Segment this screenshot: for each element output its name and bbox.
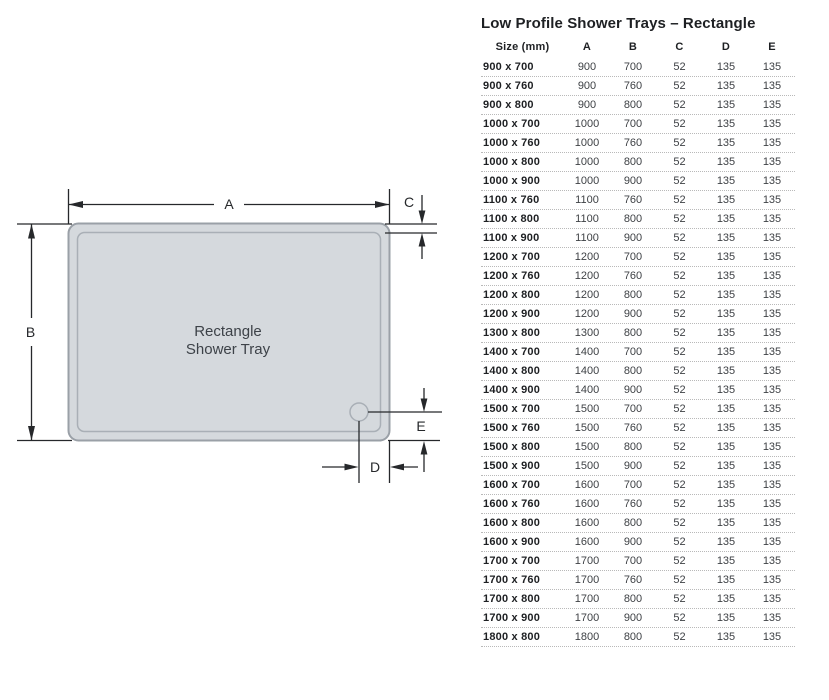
value-cell: 760 [610, 137, 656, 149]
value-cell: 760 [610, 422, 656, 434]
value-cell: 700 [610, 479, 656, 491]
value-cell: 1700 [564, 612, 610, 624]
value-cell: 52 [656, 479, 703, 491]
value-cell: 135 [703, 536, 749, 548]
value-cell: 135 [703, 346, 749, 358]
size-cell: 1000 x 800 [481, 156, 564, 168]
table-row: 1600 x 800160080052135135 [481, 514, 795, 533]
value-cell: 52 [656, 384, 703, 396]
table-row: 1300 x 800130080052135135 [481, 324, 795, 343]
arrowhead-down [421, 399, 428, 413]
table-row: 1100 x 900110090052135135 [481, 229, 795, 248]
size-cell: 900 x 760 [481, 80, 564, 92]
value-cell: 135 [749, 479, 795, 491]
value-cell: 800 [610, 365, 656, 377]
value-cell: 135 [703, 593, 749, 605]
value-cell: 135 [749, 593, 795, 605]
value-cell: 900 [610, 460, 656, 472]
value-cell: 135 [749, 460, 795, 472]
value-cell: 900 [610, 536, 656, 548]
table-row: 1700 x 700170070052135135 [481, 552, 795, 571]
value-cell: 800 [610, 631, 656, 643]
value-cell: 52 [656, 441, 703, 453]
value-cell: 135 [749, 232, 795, 244]
value-cell: 135 [703, 80, 749, 92]
value-cell: 800 [610, 441, 656, 453]
value-cell: 760 [610, 270, 656, 282]
value-cell: 900 [610, 308, 656, 320]
table-row: 1000 x 800100080052135135 [481, 153, 795, 172]
tray-label-line2: Shower Tray [186, 341, 271, 358]
value-cell: 700 [610, 555, 656, 567]
size-cell: 1100 x 800 [481, 213, 564, 225]
value-cell: 800 [610, 517, 656, 529]
column-header: D [703, 41, 749, 53]
value-cell: 135 [749, 574, 795, 586]
value-cell: 135 [749, 175, 795, 187]
column-header: Size (mm) [481, 41, 564, 53]
value-cell: 700 [610, 118, 656, 130]
value-cell: 135 [749, 403, 795, 415]
value-cell: 135 [749, 517, 795, 529]
value-cell: 135 [703, 156, 749, 168]
value-cell: 135 [703, 232, 749, 244]
dimension-a: A [69, 189, 390, 224]
value-cell: 760 [610, 574, 656, 586]
column-header: B [610, 41, 656, 53]
page: Rectangle Shower Tray A B C [0, 0, 829, 700]
value-cell: 135 [749, 346, 795, 358]
value-cell: 1700 [564, 555, 610, 567]
value-cell: 52 [656, 460, 703, 472]
value-cell: 135 [749, 156, 795, 168]
value-cell: 135 [703, 384, 749, 396]
value-cell: 135 [749, 118, 795, 130]
table-row: 900 x 76090076052135135 [481, 77, 795, 96]
table-row: 1000 x 900100090052135135 [481, 172, 795, 191]
value-cell: 1200 [564, 251, 610, 263]
value-cell: 1200 [564, 289, 610, 301]
shower-tray-diagram: Rectangle Shower Tray A B C [0, 180, 460, 500]
size-cell: 1000 x 900 [481, 175, 564, 187]
value-cell: 135 [749, 327, 795, 339]
value-cell: 700 [610, 403, 656, 415]
size-cell: 1700 x 900 [481, 612, 564, 624]
value-cell: 135 [749, 498, 795, 510]
value-cell: 52 [656, 327, 703, 339]
value-cell: 52 [656, 631, 703, 643]
size-cell: 1100 x 760 [481, 194, 564, 206]
value-cell: 1000 [564, 175, 610, 187]
value-cell: 135 [703, 251, 749, 263]
size-cell: 1700 x 800 [481, 593, 564, 605]
table-row: 1700 x 760170076052135135 [481, 571, 795, 590]
table-row: 1200 x 800120080052135135 [481, 286, 795, 305]
value-cell: 900 [610, 232, 656, 244]
value-cell: 135 [749, 80, 795, 92]
table-row: 1200 x 900120090052135135 [481, 305, 795, 324]
size-cell: 1700 x 700 [481, 555, 564, 567]
value-cell: 760 [610, 80, 656, 92]
column-header: A [564, 41, 610, 53]
value-cell: 1200 [564, 270, 610, 282]
value-cell: 900 [564, 61, 610, 73]
value-cell: 52 [656, 156, 703, 168]
size-cell: 900 x 700 [481, 61, 564, 73]
size-cell: 1000 x 760 [481, 137, 564, 149]
value-cell: 135 [703, 517, 749, 529]
table-row: 1700 x 800170080052135135 [481, 590, 795, 609]
value-cell: 52 [656, 270, 703, 282]
value-cell: 135 [703, 631, 749, 643]
value-cell: 800 [610, 213, 656, 225]
table-header-row: Size (mm)ABCDE [481, 36, 795, 58]
value-cell: 135 [703, 118, 749, 130]
value-cell: 52 [656, 118, 703, 130]
dimension-c: C [385, 194, 437, 259]
table-row: 1000 x 700100070052135135 [481, 115, 795, 134]
size-cell: 1400 x 700 [481, 346, 564, 358]
value-cell: 1600 [564, 479, 610, 491]
table-row: 900 x 80090080052135135 [481, 96, 795, 115]
dim-c-label: C [404, 194, 414, 210]
value-cell: 52 [656, 308, 703, 320]
value-cell: 135 [703, 365, 749, 377]
value-cell: 52 [656, 99, 703, 111]
column-header: C [656, 41, 703, 53]
value-cell: 135 [703, 403, 749, 415]
value-cell: 135 [703, 555, 749, 567]
value-cell: 52 [656, 61, 703, 73]
value-cell: 1500 [564, 441, 610, 453]
table-row: 1600 x 900160090052135135 [481, 533, 795, 552]
size-table: Size (mm)ABCDE 900 x 7009007005213513590… [481, 36, 795, 647]
value-cell: 1400 [564, 346, 610, 358]
value-cell: 135 [749, 99, 795, 111]
value-cell: 52 [656, 517, 703, 529]
value-cell: 700 [610, 251, 656, 263]
arrowhead-up [28, 224, 35, 239]
value-cell: 135 [703, 137, 749, 149]
value-cell: 135 [703, 194, 749, 206]
size-cell: 1800 x 800 [481, 631, 564, 643]
table-row: 1500 x 800150080052135135 [481, 438, 795, 457]
value-cell: 135 [749, 441, 795, 453]
table-body: 900 x 70090070052135135900 x 76090076052… [481, 58, 795, 647]
value-cell: 135 [703, 327, 749, 339]
extension-line [385, 224, 437, 233]
table-row: 1000 x 760100076052135135 [481, 134, 795, 153]
value-cell: 135 [703, 479, 749, 491]
value-cell: 135 [703, 441, 749, 453]
value-cell: 1100 [564, 232, 610, 244]
value-cell: 135 [703, 175, 749, 187]
size-cell: 1700 x 760 [481, 574, 564, 586]
value-cell: 135 [703, 498, 749, 510]
value-cell: 135 [749, 631, 795, 643]
value-cell: 52 [656, 555, 703, 567]
value-cell: 52 [656, 137, 703, 149]
dim-b-label: B [26, 324, 35, 340]
arrowhead-left [69, 201, 84, 208]
value-cell: 1300 [564, 327, 610, 339]
size-cell: 1600 x 900 [481, 536, 564, 548]
table-row: 1500 x 760150076052135135 [481, 419, 795, 438]
value-cell: 800 [610, 156, 656, 168]
value-cell: 135 [703, 289, 749, 301]
arrowhead-down [419, 211, 426, 225]
arrowhead-left [390, 464, 404, 471]
value-cell: 1600 [564, 498, 610, 510]
value-cell: 135 [749, 289, 795, 301]
value-cell: 800 [610, 327, 656, 339]
dim-d-label: D [370, 459, 380, 475]
value-cell: 135 [749, 270, 795, 282]
value-cell: 760 [610, 194, 656, 206]
table-row: 1400 x 700140070052135135 [481, 343, 795, 362]
value-cell: 135 [703, 460, 749, 472]
value-cell: 1800 [564, 631, 610, 643]
value-cell: 135 [749, 612, 795, 624]
size-cell: 1500 x 700 [481, 403, 564, 415]
size-cell: 1600 x 700 [481, 479, 564, 491]
value-cell: 135 [703, 99, 749, 111]
value-cell: 52 [656, 175, 703, 187]
size-cell: 1500 x 760 [481, 422, 564, 434]
table-row: 1800 x 800180080052135135 [481, 628, 795, 647]
value-cell: 135 [703, 61, 749, 73]
value-cell: 800 [610, 99, 656, 111]
value-cell: 52 [656, 289, 703, 301]
value-cell: 52 [656, 612, 703, 624]
value-cell: 135 [749, 251, 795, 263]
value-cell: 52 [656, 232, 703, 244]
column-header: E [749, 41, 795, 53]
value-cell: 900 [610, 384, 656, 396]
value-cell: 135 [703, 422, 749, 434]
size-cell: 1200 x 800 [481, 289, 564, 301]
value-cell: 1000 [564, 137, 610, 149]
arrowhead-up [421, 441, 428, 455]
table-row: 1600 x 760160076052135135 [481, 495, 795, 514]
value-cell: 135 [703, 308, 749, 320]
value-cell: 700 [610, 61, 656, 73]
size-cell: 1600 x 760 [481, 498, 564, 510]
arrowhead-down [28, 426, 35, 441]
value-cell: 135 [749, 194, 795, 206]
size-cell: 900 x 800 [481, 99, 564, 111]
value-cell: 135 [749, 308, 795, 320]
size-cell: 1500 x 900 [481, 460, 564, 472]
value-cell: 135 [749, 365, 795, 377]
value-cell: 135 [749, 555, 795, 567]
value-cell: 1000 [564, 156, 610, 168]
value-cell: 1400 [564, 384, 610, 396]
size-cell: 1400 x 800 [481, 365, 564, 377]
value-cell: 135 [703, 213, 749, 225]
table-row: 1200 x 700120070052135135 [481, 248, 795, 267]
table-row: 1100 x 800110080052135135 [481, 210, 795, 229]
value-cell: 52 [656, 346, 703, 358]
value-cell: 52 [656, 574, 703, 586]
size-cell: 1200 x 700 [481, 251, 564, 263]
value-cell: 52 [656, 422, 703, 434]
value-cell: 1700 [564, 593, 610, 605]
value-cell: 135 [749, 137, 795, 149]
value-cell: 900 [564, 99, 610, 111]
value-cell: 52 [656, 536, 703, 548]
value-cell: 700 [610, 346, 656, 358]
value-cell: 135 [703, 612, 749, 624]
value-cell: 760 [610, 498, 656, 510]
value-cell: 52 [656, 365, 703, 377]
value-cell: 135 [749, 213, 795, 225]
value-cell: 52 [656, 213, 703, 225]
table-row: 1400 x 900140090052135135 [481, 381, 795, 400]
arrowhead-right [345, 464, 359, 471]
value-cell: 900 [610, 175, 656, 187]
dim-e-label: E [416, 418, 425, 434]
value-cell: 135 [703, 574, 749, 586]
value-cell: 52 [656, 593, 703, 605]
size-cell: 1000 x 700 [481, 118, 564, 130]
value-cell: 52 [656, 498, 703, 510]
value-cell: 1600 [564, 517, 610, 529]
value-cell: 135 [749, 384, 795, 396]
size-cell: 1600 x 800 [481, 517, 564, 529]
size-cell: 1400 x 900 [481, 384, 564, 396]
page-title: Low Profile Shower Trays – Rectangle [481, 15, 756, 32]
size-cell: 1500 x 800 [481, 441, 564, 453]
arrowhead-up [419, 233, 426, 247]
value-cell: 52 [656, 251, 703, 263]
size-cell: 1200 x 900 [481, 308, 564, 320]
value-cell: 900 [610, 612, 656, 624]
table-row: 1400 x 800140080052135135 [481, 362, 795, 381]
value-cell: 1500 [564, 460, 610, 472]
size-cell: 1200 x 760 [481, 270, 564, 282]
value-cell: 135 [703, 270, 749, 282]
size-cell: 1100 x 900 [481, 232, 564, 244]
arrowhead-right [375, 201, 390, 208]
value-cell: 52 [656, 403, 703, 415]
value-cell: 135 [749, 61, 795, 73]
tray-label-line1: Rectangle [194, 323, 262, 340]
table-row: 1600 x 700160070052135135 [481, 476, 795, 495]
value-cell: 900 [564, 80, 610, 92]
value-cell: 135 [749, 422, 795, 434]
value-cell: 1500 [564, 422, 610, 434]
value-cell: 1600 [564, 536, 610, 548]
value-cell: 1400 [564, 365, 610, 377]
value-cell: 1700 [564, 574, 610, 586]
value-cell: 1100 [564, 213, 610, 225]
value-cell: 135 [749, 536, 795, 548]
table-row: 1700 x 900170090052135135 [481, 609, 795, 628]
value-cell: 52 [656, 80, 703, 92]
value-cell: 1500 [564, 403, 610, 415]
table-row: 1200 x 760120076052135135 [481, 267, 795, 286]
dimension-b: B [17, 224, 72, 441]
size-cell: 1300 x 800 [481, 327, 564, 339]
value-cell: 1200 [564, 308, 610, 320]
table-row: 900 x 70090070052135135 [481, 58, 795, 77]
table-row: 1500 x 700150070052135135 [481, 400, 795, 419]
value-cell: 1000 [564, 118, 610, 130]
value-cell: 52 [656, 194, 703, 206]
table-row: 1500 x 900150090052135135 [481, 457, 795, 476]
dim-a-label: A [224, 196, 234, 212]
value-cell: 1100 [564, 194, 610, 206]
value-cell: 800 [610, 289, 656, 301]
table-row: 1100 x 760110076052135135 [481, 191, 795, 210]
value-cell: 800 [610, 593, 656, 605]
